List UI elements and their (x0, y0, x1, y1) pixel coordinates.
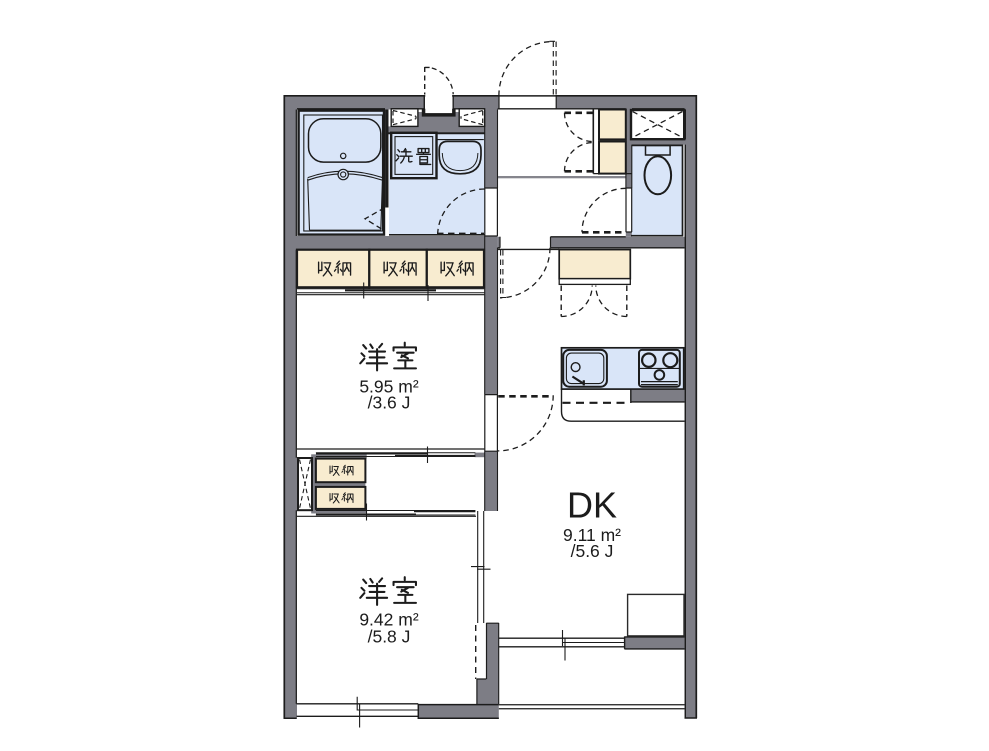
svg-text:/5.8 J: /5.8 J (368, 627, 411, 647)
svg-text:DK: DK (567, 485, 617, 526)
svg-text:/3.6 J: /3.6 J (368, 393, 411, 413)
svg-text:/5.6 J: /5.6 J (571, 541, 614, 561)
